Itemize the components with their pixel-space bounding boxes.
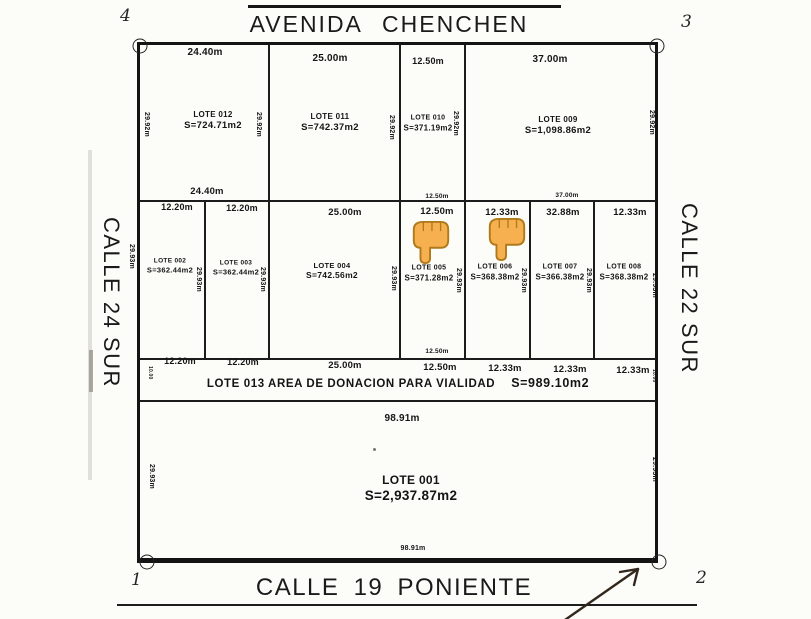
- lot-area: S=368.38m2: [470, 272, 519, 282]
- dimension-label: 12.20m: [226, 203, 258, 213]
- dimension-label: 12.50m: [412, 56, 444, 66]
- dimension-label: 12.20m: [161, 202, 193, 212]
- dimension-label: 12.50m: [420, 206, 453, 217]
- dimension-label: 25.00m: [312, 53, 347, 64]
- corner-number: 1: [131, 570, 142, 590]
- corner-survey-marker: [652, 555, 667, 570]
- dimension-label: 25.00m: [328, 360, 361, 371]
- lot-area: S=742.56m2: [306, 270, 358, 281]
- lot-boundary-line: [464, 45, 466, 200]
- lot-area: S=362.44m2: [147, 265, 193, 274]
- dimension-label: 12.33m: [553, 364, 586, 375]
- lot-area: S=1,098.86m2: [525, 125, 591, 137]
- dimension-label-vertical: 29.92m: [648, 110, 655, 135]
- pointing-down-hand-icon: [485, 216, 529, 267]
- lot-label: LOTE 009S=1,098.86m2: [525, 115, 591, 137]
- dimension-label: 24.40m: [187, 47, 222, 58]
- lot-boundary-line: [268, 45, 270, 200]
- dimension-label-vertical: 29.92m: [388, 115, 395, 140]
- dimension-label-vertical: 29.93m: [195, 267, 202, 292]
- dimension-label-vertical: 29.93m: [520, 268, 527, 293]
- lot-number: LOTE 001: [365, 473, 458, 488]
- corner-survey-marker: [650, 39, 665, 54]
- lot-number: LOTE 004: [306, 261, 358, 270]
- corner-number: 3: [681, 12, 692, 32]
- scan-artifact: [88, 150, 92, 480]
- corner-number: 2: [696, 568, 707, 588]
- dimension-label-vertical: 29.93m: [455, 268, 462, 293]
- dimension-label-vertical: 29.92m: [143, 112, 150, 137]
- lot-area: S=742.37m2: [301, 122, 359, 134]
- dimension-label: 12.50m: [425, 193, 448, 200]
- dimension-label-vertical: 10.00: [147, 366, 153, 380]
- lot-013-donation-strip: LOTE 013 AREA DE DONACION PARA VIALIDADS…: [140, 376, 656, 390]
- dimension-label-vertical: 29.93m: [148, 464, 155, 489]
- lot-number: LOTE 003: [213, 259, 259, 267]
- lot-boundary-line: [204, 200, 206, 358]
- lot-boundary-line: [593, 200, 595, 358]
- survey-plat-map: AVENIDA CHENCHEN CALLE 24 SUR CALLE 22 S…: [0, 0, 811, 619]
- dimension-label-vertical: 29.93m: [259, 267, 266, 292]
- lot-number: LOTE 002: [147, 257, 193, 265]
- scan-artifact: [373, 448, 376, 451]
- lot-013-area: S=989.10m2: [511, 376, 589, 390]
- dimension-label: 12.20m: [164, 356, 196, 366]
- lot-label: LOTE 008S=368.38m2: [599, 264, 648, 283]
- dimension-label: 98.91m: [401, 545, 426, 552]
- lot-number: LOTE 011: [301, 112, 359, 122]
- lot-number: LOTE 010: [403, 115, 452, 124]
- lot-area: S=368.38m2: [599, 272, 648, 282]
- street-name-left: CALLE 24 SUR: [98, 217, 124, 388]
- lot-boundary-line: [529, 200, 531, 358]
- pointing-down-hand-icon: [409, 219, 453, 270]
- dimension-label-vertical: 29.93m: [651, 457, 658, 482]
- lot-label: LOTE 002S=362.44m2: [147, 257, 193, 275]
- street-name-top: AVENIDA CHENCHEN: [250, 11, 529, 38]
- lot-boundary-line: [140, 358, 656, 360]
- dimension-label: 12.50m: [425, 348, 448, 355]
- lot-boundary-line: [268, 200, 270, 358]
- lot-013-label: LOTE 013 AREA DE DONACION PARA VIALIDAD: [207, 378, 495, 390]
- dimension-label: 24.40m: [190, 186, 223, 197]
- lot-label: LOTE 001S=2,937.87m2: [365, 473, 458, 505]
- corner-survey-marker: [133, 39, 148, 54]
- lot-label: LOTE 003S=362.44m2: [213, 259, 259, 277]
- avenue-street-line: [248, 5, 561, 8]
- lot-area: S=2,937.87m2: [365, 488, 458, 505]
- dimension-label: 12.50m: [423, 362, 456, 373]
- dimension-label-vertical: 29.93m: [128, 244, 135, 269]
- dimension-label-vertical: 29.93m: [651, 273, 658, 298]
- lot-boundary-line: [399, 45, 401, 200]
- dimension-label: 12.33m: [613, 207, 646, 218]
- lot-area: S=371.28m2: [404, 273, 453, 283]
- dimension-label: 98.91m: [384, 413, 419, 424]
- lot-label: LOTE 011S=742.37m2: [301, 112, 359, 134]
- dimension-label: 25.00m: [328, 207, 361, 218]
- dimension-label: 37.00m: [532, 54, 567, 65]
- dimension-label: 32.88m: [546, 207, 579, 218]
- lot-number: LOTE 008: [599, 264, 648, 273]
- lot-number: LOTE 009: [525, 115, 591, 125]
- corner-survey-marker: [140, 555, 155, 570]
- dimension-label-vertical: 29.93m: [585, 268, 592, 293]
- lot-boundary-line: [140, 200, 656, 202]
- lot-boundary-line: [464, 200, 466, 358]
- lot-area: S=371.19m2: [403, 123, 452, 133]
- lot-boundary-line: [140, 400, 656, 402]
- lot-label: LOTE 004S=742.56m2: [306, 261, 358, 281]
- lot-label: LOTE 007S=366.38m2: [535, 264, 584, 283]
- hand-drawn-arrow-icon: [552, 552, 648, 619]
- corner-number: 4: [120, 6, 131, 26]
- lot-number: LOTE 012: [184, 110, 242, 120]
- dimension-label-vertical: 29.92m: [452, 111, 459, 136]
- lot-label: LOTE 012S=724.71m2: [184, 110, 242, 132]
- dimension-label: 12.33m: [616, 365, 649, 376]
- dimension-label-vertical: 29.93m: [390, 266, 397, 291]
- lot-area: S=366.38m2: [535, 272, 584, 282]
- dimension-label-vertical: 10.00: [651, 369, 657, 383]
- dimension-label: 37.00m: [555, 192, 578, 199]
- lot-label: LOTE 010S=371.19m2: [403, 115, 452, 134]
- lot-area: S=362.44m2: [213, 267, 259, 276]
- street-name-bottom: CALLE 19 PONIENTE: [256, 574, 532, 602]
- dimension-label: 12.20m: [227, 357, 259, 367]
- street-name-right: CALLE 22 SUR: [676, 203, 702, 374]
- lot-boundary-line: [399, 200, 401, 358]
- lot-area: S=724.71m2: [184, 120, 242, 132]
- dimension-label-vertical: 29.92m: [255, 112, 262, 137]
- scan-artifact: [89, 350, 93, 392]
- dimension-label: 12.33m: [488, 363, 521, 374]
- lot-number: LOTE 007: [535, 264, 584, 273]
